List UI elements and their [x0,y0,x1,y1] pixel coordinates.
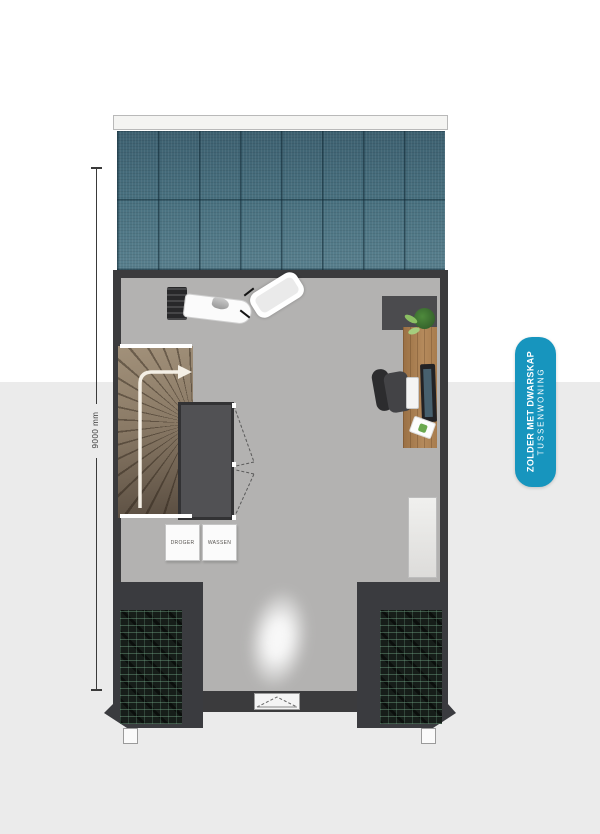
floor-plan-canvas: 9000 mm DROGER WASSEN [0,0,600,834]
dimension-line-lower [96,458,97,690]
badge-title: ZOLDER MET DWARSKAP [525,351,537,472]
stairs-direction-arrow [118,346,198,518]
washer-label: WASSEN [208,540,231,546]
chimney-foot-left [123,728,138,744]
chimney-foot-right [421,728,436,744]
dimension-label: 9000 mm [91,396,103,464]
dimension-line-upper [96,168,97,404]
washer-unit: WASSEN [202,524,237,561]
roof-ridge [113,115,448,130]
roof-hatch-right [380,610,442,724]
awning-window-symbol [255,694,299,709]
badge-subtitle: TUSSENWONING [537,368,548,456]
notebook-logo [417,422,427,432]
storage-cabinet [408,497,437,578]
monitor [420,364,437,422]
floorplan-badge: ZOLDER MET DWARSKAP TUSSENWONING [515,337,556,487]
roof-hatch-left [120,610,182,724]
badge-text: ZOLDER MET DWARSKAP TUSSENWONING [516,337,557,487]
desktop-pc [406,377,419,409]
wall-right [440,270,448,582]
plant [414,308,435,329]
monitor-screen [423,369,433,417]
solar-panel-array [117,131,445,270]
dormer-window [254,693,300,710]
wardrobe-door-swing [232,400,260,524]
dryer-label: DROGER [171,540,195,546]
dryer-unit: DROGER [165,524,200,561]
dimension-tick-bottom [91,689,102,691]
